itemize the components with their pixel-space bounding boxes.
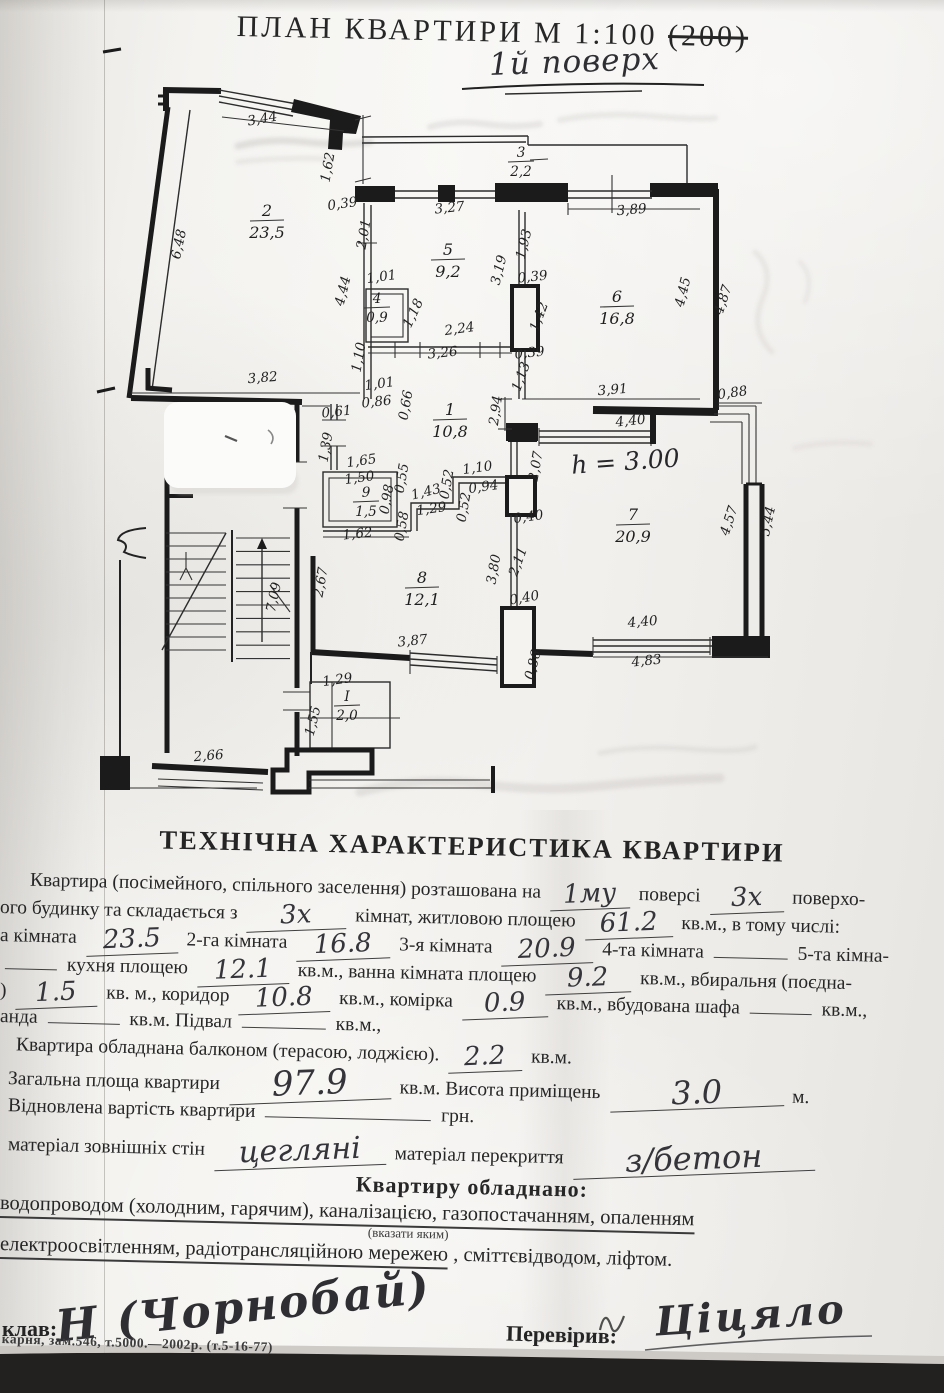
printed-text: кв.м., комірка <box>339 988 453 1012</box>
printed-text: поверсі <box>639 884 701 906</box>
handwritten-value: 3х <box>246 904 347 932</box>
printed-text: матеріал перекриття <box>394 1143 563 1168</box>
printed-text: матеріал зовнішніх стін <box>8 1134 206 1160</box>
printed-text: кухня площею <box>67 955 189 979</box>
checked-by-label: Перевірив: <box>506 1321 618 1350</box>
blank-underline <box>5 953 57 970</box>
printed-text: , сміттєвідводом, ліфтом. <box>453 1244 673 1271</box>
printed-text: кв.м. <box>531 1047 572 1069</box>
blank-underline <box>47 1007 119 1025</box>
handwritten-value: 2.2 <box>448 1046 523 1073</box>
blank-underline <box>242 1012 326 1030</box>
handwritten-value: 1му <box>549 883 630 910</box>
handwritten-value: 1.5 <box>15 982 98 1010</box>
printed-text: ого будинку та складається з <box>0 897 238 924</box>
handwritten-value: з/бетон <box>572 1142 815 1180</box>
printed-text: 4-та кімната <box>602 939 704 962</box>
printed-text: анда <box>0 1006 38 1028</box>
handwritten-value: 97.9 <box>228 1068 391 1105</box>
paper-top-edge-shadow <box>0 0 944 12</box>
printed-text: кв.м., вбудована шафа <box>556 993 740 1018</box>
handwritten-value: 3.0 <box>609 1077 784 1113</box>
title-struck-scale: (200) <box>668 19 749 54</box>
printed-text: кімнат, житловою площею <box>355 905 576 931</box>
blank-underline <box>750 998 812 1015</box>
printed-text: кв.м., <box>821 999 867 1021</box>
printed-text: грн. <box>441 1105 475 1127</box>
printed-text: м. <box>792 1087 810 1108</box>
printed-text: кв. м., коридор <box>106 983 230 1007</box>
printed-text: 5-та кімна- <box>797 944 889 967</box>
handwritten-value: 20.9 <box>501 938 594 966</box>
handwritten-value: 10.8 <box>238 987 331 1015</box>
handwritten-value: 61.2 <box>584 912 673 940</box>
printed-text: кв.м., вбиральня (поєдна- <box>640 968 852 994</box>
printed-text: кв.м., <box>335 1014 381 1036</box>
handwritten-value: 16.8 <box>296 933 391 961</box>
printed-text: 3-я кімната <box>399 934 493 957</box>
printed-text: поверхо- <box>792 888 865 911</box>
printed-text: кв.м. Висота приміщень <box>399 1077 600 1103</box>
printed-text: Квартиру обладнано: <box>355 1171 588 1201</box>
printed-text: Відновлена вартість квартири <box>8 1095 256 1122</box>
printed-text: 2-га кімната <box>186 929 287 952</box>
printed-text: ) <box>0 980 7 1001</box>
handwritten-value: 3х <box>709 887 784 914</box>
floor-note: 1й поверх <box>488 41 660 83</box>
printed-text: кв.м., в тому числі: <box>681 913 840 938</box>
scanned-apartment-plan-page: 3,446,481,620,393,272,014,441,011,182,24… <box>0 0 944 1393</box>
printed-text: а кімната <box>0 925 77 948</box>
blank-underline <box>265 1101 431 1121</box>
printed-text: (вказати яким) <box>368 1225 449 1242</box>
handwritten-value: цегляні <box>213 1137 386 1171</box>
handwritten-value: 23.5 <box>85 928 178 956</box>
printed-text: Загальна площа квартири <box>8 1068 220 1094</box>
printed-text: кв.м. Підвал <box>129 1009 232 1032</box>
blank-underline <box>714 942 788 960</box>
handwritten-value: 0.9 <box>461 992 548 1020</box>
printed-text: кв.м., ванна кімната площею <box>297 960 536 987</box>
handwritten-value: 9.2 <box>545 967 632 995</box>
